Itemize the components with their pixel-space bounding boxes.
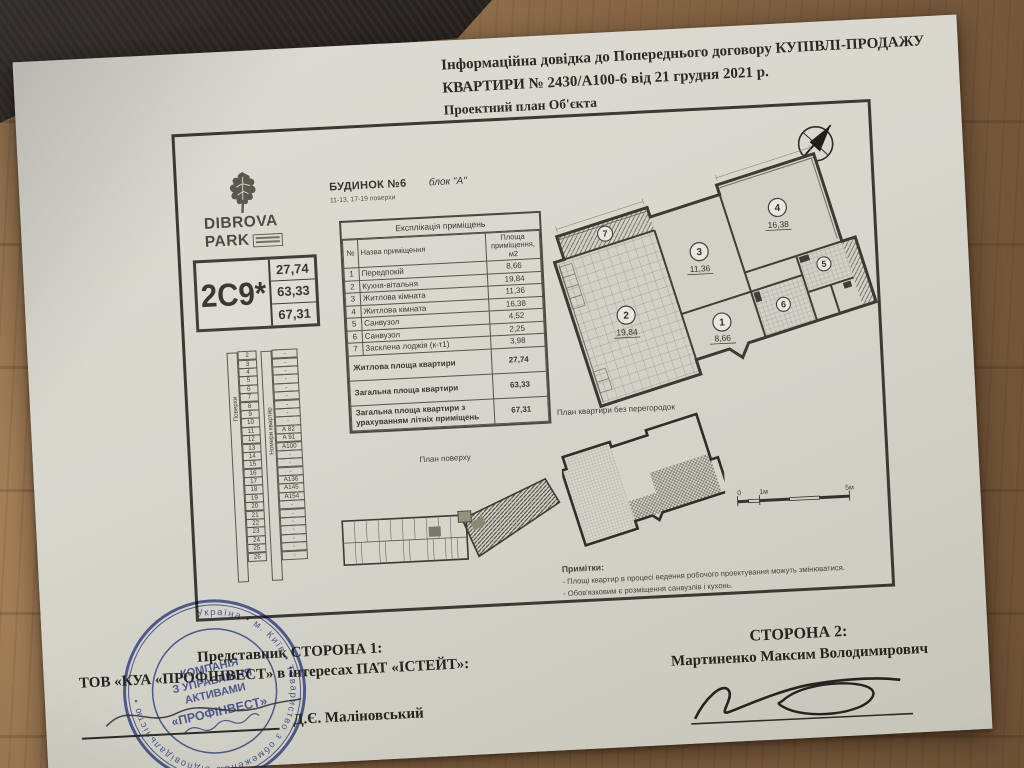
party1-signer-name: Д.Є. Маліновський: [293, 705, 424, 729]
party2-block: СТОРОНА 2: Мартиненко Максим Володимиров…: [630, 617, 971, 740]
room-number: 7: [348, 343, 364, 356]
room-number: 2: [344, 280, 360, 293]
svg-text:16,38: 16,38: [767, 219, 789, 230]
storey-plan: [330, 460, 567, 574]
svg-text:6: 6: [781, 299, 787, 309]
photo-of-document: Інформаційна довідка до Попереднього дог…: [0, 0, 1024, 768]
total-value: 63,33: [492, 371, 547, 399]
no-partitions-plan: [559, 410, 728, 566]
total-area-summer-value: 67,31: [272, 301, 317, 326]
svg-text:1м: 1м: [759, 489, 768, 496]
floor-cell: 26: [248, 552, 267, 562]
total-value: 27,74: [491, 346, 546, 374]
room-number: 6: [347, 330, 363, 343]
room-number: 5: [346, 318, 362, 331]
total-area-value: 63,33: [271, 279, 316, 304]
scale-bar: 0 1м 5м: [733, 481, 862, 513]
plan-frame: DIBROVA PARK 2С9* 27,74 63,33 67,31 Пове…: [171, 99, 895, 622]
svg-text:7: 7: [602, 229, 608, 239]
room-6-label: 6: [776, 297, 791, 312]
svg-text:8,66: 8,66: [714, 333, 731, 344]
building-heading: БУДИНОК №6 блок "А": [329, 171, 467, 196]
building-block: блок "А": [429, 176, 467, 189]
svg-text:0: 0: [737, 490, 741, 497]
apartment-number-cell: -: [282, 550, 308, 560]
svg-text:1: 1: [719, 317, 726, 328]
total-value: 67,31: [494, 396, 549, 424]
floors-label: Поверхи: [231, 396, 239, 421]
document-sheet: Інформаційна довідка до Попереднього дог…: [13, 15, 993, 768]
oak-leaf-icon: [225, 169, 261, 215]
dibrova-park-logo: DIBROVA PARK: [201, 167, 301, 252]
room-5-label: 5: [817, 257, 832, 272]
room-number: 1: [344, 268, 360, 281]
logo-tagline-box: [252, 232, 283, 247]
apartment-type-code: 2С9*: [199, 260, 268, 329]
apartment-floor-plan: 2 19,84 3 11,36 4: [536, 142, 884, 417]
svg-text:11,36: 11,36: [689, 263, 710, 274]
svg-text:4: 4: [774, 203, 781, 214]
explication-table: Експлікація приміщень № Назва приміщення…: [339, 211, 551, 433]
svg-text:19,84: 19,84: [616, 327, 638, 338]
svg-text:2: 2: [623, 310, 630, 321]
col-header-num: №: [342, 240, 358, 269]
svg-text:5: 5: [821, 259, 827, 269]
party2-signature: [686, 663, 917, 729]
apartment-areas: 27,74 63,33 67,31: [268, 257, 317, 325]
apartment-type-box: 2С9* 27,74 63,33 67,31: [193, 254, 320, 332]
logo-text-park: PARK: [204, 232, 250, 252]
party1-signature: [94, 670, 312, 741]
building-floors-note: 11-13, 17-19 поверхи: [330, 194, 396, 204]
svg-text:3: 3: [696, 247, 703, 258]
room-7-label: 7: [597, 226, 613, 242]
col-header-area: Площа приміщення, м2: [485, 230, 540, 261]
building-title: БУДИНОК №6: [329, 178, 407, 194]
living-area-value: 27,74: [270, 257, 315, 281]
room-number: 3: [345, 293, 361, 306]
room-number: 4: [346, 305, 362, 318]
